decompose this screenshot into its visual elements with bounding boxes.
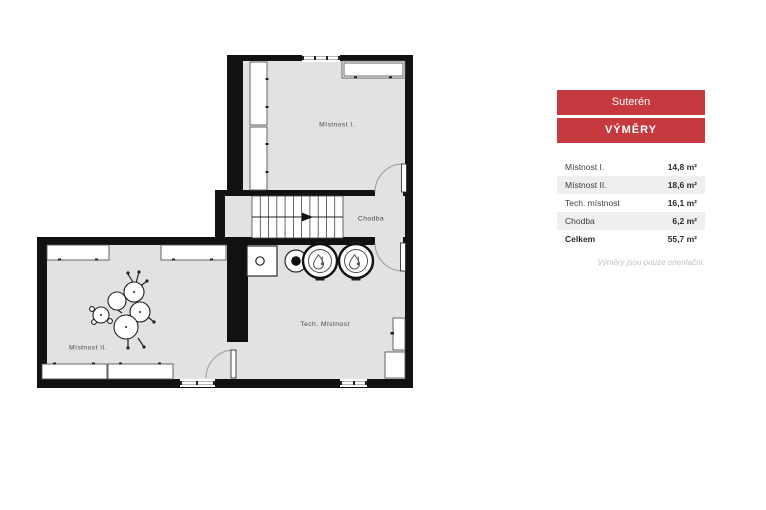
table-row: Tech. místnost 16,1 m² [557,194,705,212]
corridor-label: Chodba [358,216,384,223]
row-value: 14,8 m² [668,162,697,172]
wardrobe [250,62,269,125]
cabinet [108,363,173,380]
room1-label: Místnost I. [319,122,355,129]
room2-label: Místnost II. [69,345,107,352]
row-value: 55,7 m² [668,234,697,244]
page: Místnost I. Chodba Místnost II. Tech. Mí… [0,0,766,510]
table-row: Místnost II. 18,6 m² [557,176,705,194]
boiler-icon [339,242,373,281]
row-value: 16,1 m² [668,198,697,208]
cabinet [42,363,107,380]
window [180,379,215,387]
cabinet [161,245,226,261]
room-floors [47,61,405,379]
tech-room-label: Tech. Místnost [300,321,349,328]
staircase [252,196,343,238]
boiler-icon [303,242,337,281]
row-label: Místnost II. [565,180,607,190]
row-value: 6,2 m² [672,216,697,226]
areas-table: Místnost I. 14,8 m² Místnost II. 18,6 m²… [557,158,705,248]
window [302,54,340,62]
utility-box [247,246,277,276]
table-row-total: Celkem 55,7 m² [557,230,705,248]
table-row: Místnost I. 14,8 m² [557,158,705,176]
window [340,379,367,387]
wardrobe [250,127,269,190]
row-label: Chodba [565,216,595,226]
cabinet [47,245,109,261]
disclaimer-note: Výměry jsou pouze orientační. [557,258,705,267]
table-row: Chodba 6,2 m² [557,212,705,230]
row-label: Celkem [565,234,595,244]
row-label: Tech. místnost [565,198,620,208]
floor-plan: Místnost I. Chodba Místnost II. Tech. Mí… [0,0,430,400]
corner-fixture [385,352,405,378]
counter [342,61,405,79]
floor-selector-button[interactable]: Suterén [557,90,705,115]
row-label: Místnost I. [565,162,604,172]
info-panel: Suterén VÝMĚRY Místnost I. 14,8 m² Místn… [557,90,705,267]
wall-fixture [391,318,406,350]
areas-tab-button[interactable]: VÝMĚRY [557,118,705,143]
row-value: 18,6 m² [668,180,697,190]
